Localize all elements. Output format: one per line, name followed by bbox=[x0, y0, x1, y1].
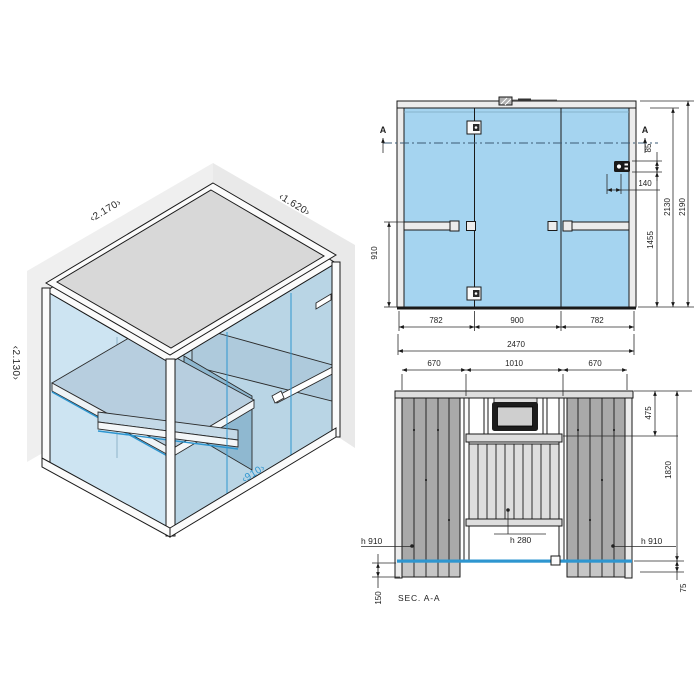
sec-bench-glass-line bbox=[397, 560, 632, 563]
hinge-dot bbox=[475, 126, 478, 129]
elev-post-left bbox=[397, 108, 404, 307]
sec-heater-unit bbox=[492, 398, 538, 431]
front-elevation-view: A A 85 1455 140 21 bbox=[370, 97, 694, 355]
rail-door-block bbox=[467, 222, 476, 231]
iso-post-left bbox=[42, 288, 50, 466]
lock-slot-1 bbox=[625, 164, 629, 166]
panel-base bbox=[402, 562, 460, 577]
dim-910: 910 bbox=[370, 246, 379, 260]
elev-top-frame bbox=[397, 101, 636, 108]
elev-door-lock bbox=[614, 161, 630, 172]
sauna-technical-drawing: ‹2.170› ‹1.620› ‹2.130› ‹910› bbox=[0, 0, 700, 700]
dim-140: 140 bbox=[638, 179, 652, 188]
elev-floor-sill bbox=[397, 307, 636, 310]
sec-right-panel bbox=[567, 398, 632, 578]
hinge-dot bbox=[475, 292, 478, 295]
elev-glass bbox=[404, 108, 629, 307]
lock-cylinder bbox=[617, 164, 621, 168]
elev-post-right bbox=[629, 108, 636, 307]
technical-drawing-page: ‹2.170› ‹1.620› ‹2.130› ‹910› bbox=[0, 0, 700, 700]
iso-height-label: ‹2.130› bbox=[10, 346, 21, 381]
dim-670-right: 670 bbox=[588, 359, 602, 368]
leader-dot-right bbox=[611, 544, 615, 548]
isometric-view: ‹2.170› ‹1.620› ‹2.130› ‹910› bbox=[10, 163, 355, 537]
leader-dot-center bbox=[506, 508, 510, 512]
dim-475: 475 bbox=[644, 406, 653, 420]
dim-2190: 2190 bbox=[678, 198, 687, 216]
sec-bench-glass-joint bbox=[551, 556, 560, 565]
sec-shelf bbox=[466, 434, 562, 442]
dim-150: 150 bbox=[374, 591, 383, 605]
panel-edge-strip bbox=[625, 398, 632, 578]
dim-85: 85 bbox=[644, 143, 653, 152]
label-h280: h 280 bbox=[510, 535, 532, 545]
sec-lower-shelf bbox=[466, 519, 562, 526]
section-letter: A bbox=[380, 125, 387, 135]
rail-end-block bbox=[563, 221, 572, 231]
iso-post-right bbox=[332, 262, 340, 437]
panel-base bbox=[567, 562, 625, 577]
iso-post-front bbox=[166, 359, 175, 536]
elev-hinge-bottom bbox=[467, 287, 481, 300]
dim-75: 75 bbox=[679, 583, 688, 592]
rail-door-block bbox=[548, 222, 557, 231]
dim-1455: 1455 bbox=[646, 231, 655, 249]
dim-900: 900 bbox=[510, 316, 524, 325]
section-letter: A bbox=[642, 125, 649, 135]
leader-dot-left bbox=[410, 544, 414, 548]
vent-dash bbox=[518, 99, 531, 102]
elev-section-marker-left: A bbox=[380, 125, 387, 153]
rail-end-block bbox=[450, 221, 459, 231]
heater-screen bbox=[498, 407, 533, 426]
rail-bar bbox=[563, 222, 629, 230]
rail-bar bbox=[404, 222, 456, 230]
lock-body bbox=[614, 161, 630, 172]
dim-782-right: 782 bbox=[590, 316, 604, 325]
label-h910-left: h 910 bbox=[361, 536, 383, 546]
elev-hinge-top bbox=[467, 121, 481, 134]
panel-boards bbox=[567, 398, 625, 560]
window-post-right bbox=[543, 398, 547, 438]
panel-boards bbox=[402, 398, 460, 560]
center-post-left bbox=[464, 398, 469, 560]
dim-1820: 1820 bbox=[664, 461, 673, 479]
panel-edge-strip bbox=[395, 398, 402, 578]
dim-2130: 2130 bbox=[663, 198, 672, 216]
dim-1010: 1010 bbox=[505, 359, 523, 368]
dim-2470: 2470 bbox=[507, 340, 525, 349]
lock-slot-2 bbox=[625, 168, 629, 170]
sec-ceiling-band bbox=[395, 391, 633, 398]
section-view: h 910 h 280 h 910 670 1010 670 bbox=[361, 359, 692, 605]
center-post-right bbox=[559, 398, 564, 560]
section-title: SEC. A-A bbox=[398, 593, 440, 603]
dim-670-left: 670 bbox=[427, 359, 441, 368]
label-h910-right: h 910 bbox=[641, 536, 663, 546]
dim-782-left: 782 bbox=[429, 316, 443, 325]
window-post-left bbox=[484, 398, 488, 438]
sec-left-panel bbox=[395, 398, 460, 578]
